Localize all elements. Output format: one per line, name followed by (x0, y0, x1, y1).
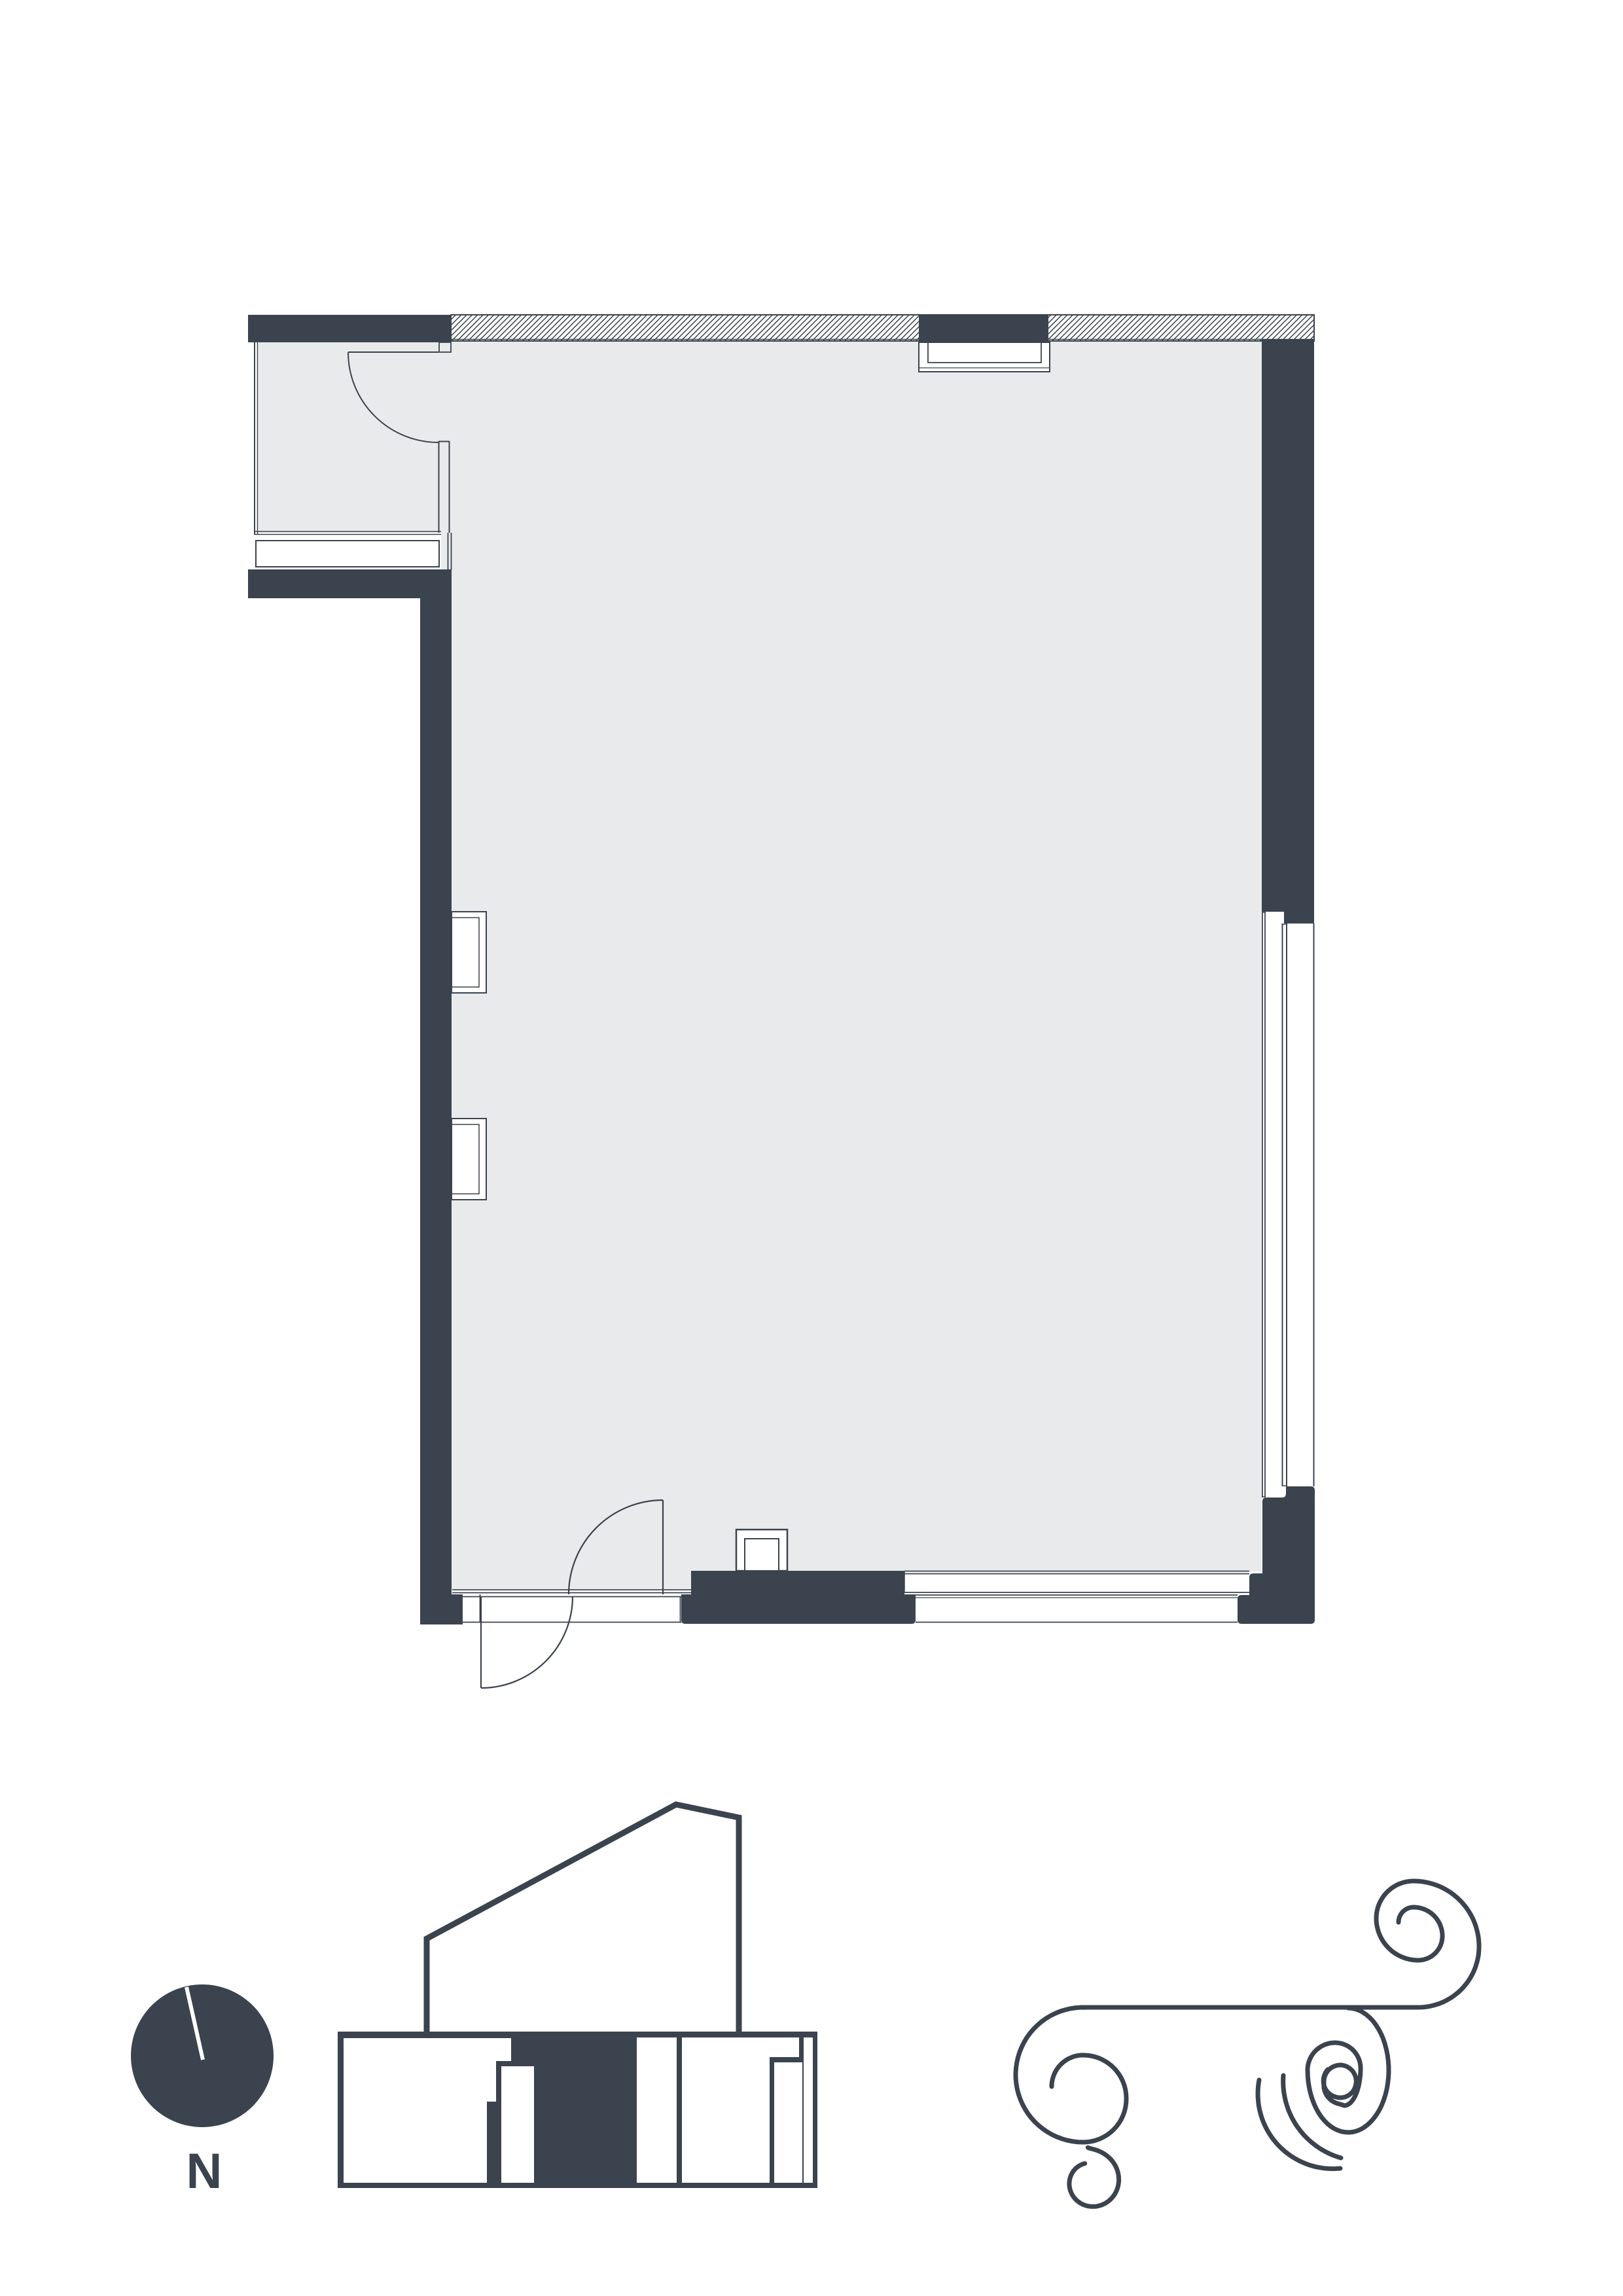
svg-text:N: N (187, 2144, 223, 2199)
